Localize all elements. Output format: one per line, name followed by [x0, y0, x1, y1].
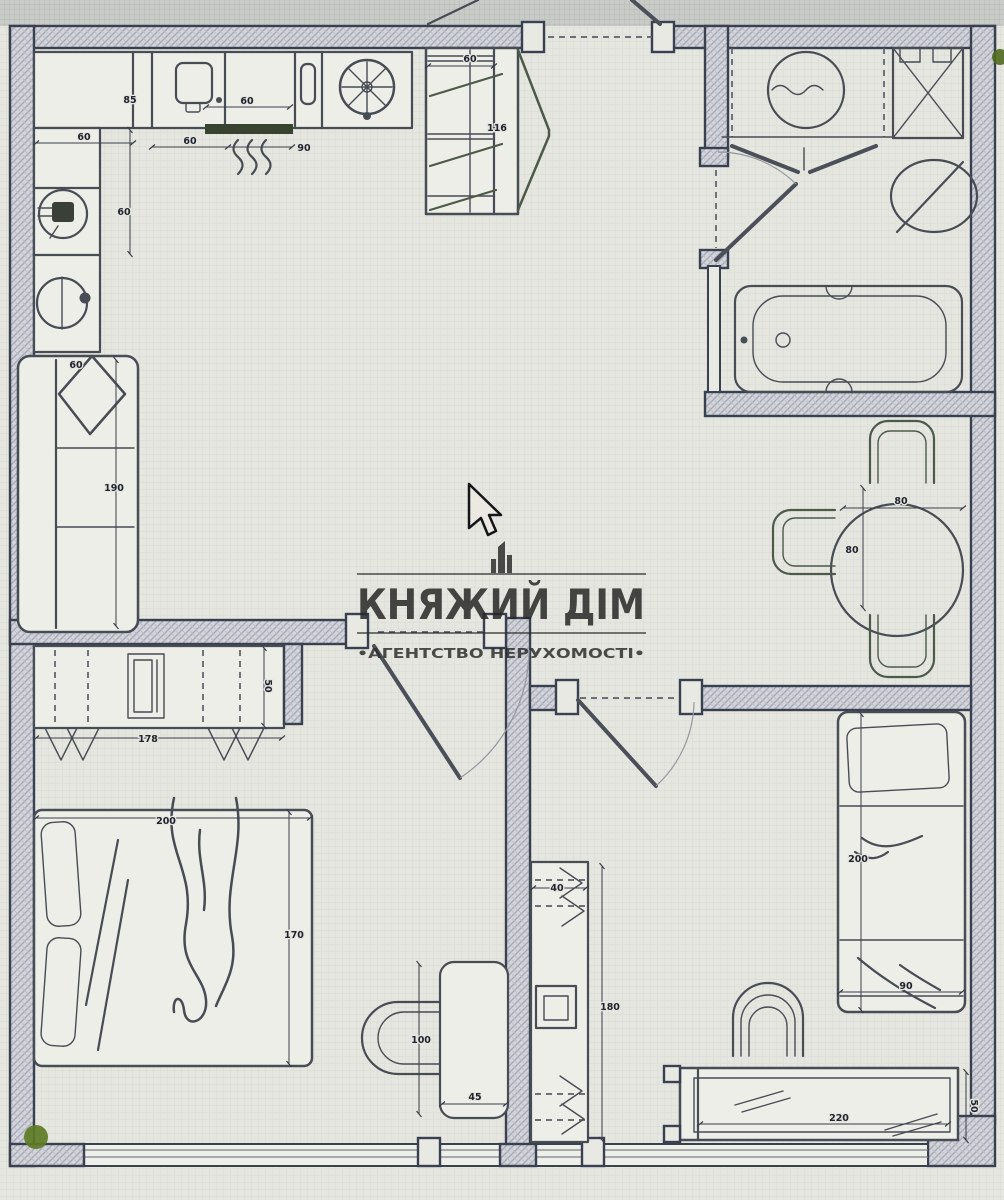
entry-jamb-left — [522, 22, 544, 52]
dim-label: 60 — [463, 54, 477, 65]
hob-front-bar — [205, 124, 293, 134]
kids-door-jamb — [680, 680, 702, 714]
dim-label: 100 — [411, 1035, 431, 1046]
dim-label: 60 — [77, 132, 91, 143]
dim-label: 220 — [829, 1113, 849, 1124]
wall-right — [971, 26, 995, 1124]
wall-bathroom-bottom — [705, 392, 995, 416]
dim-label: 40 — [550, 883, 564, 894]
dim-label: 178 — [138, 734, 158, 745]
outside-corridor-band — [0, 0, 1004, 26]
dim-label: 60 — [240, 96, 254, 107]
floor-plan-svg: 85 60 60 60 90 60 60 60 116 190 80 80 50… — [0, 0, 1004, 1200]
wall-bottom-center-block — [500, 1144, 536, 1166]
dim-label: 116 — [487, 123, 507, 134]
dim-label: 80 — [894, 496, 908, 507]
desk-icon — [664, 1066, 958, 1142]
wall-mid-vertical — [506, 618, 530, 1150]
dim-label: 60 — [183, 136, 197, 147]
dim-label: 90 — [297, 143, 311, 154]
kids-door-jamb — [556, 680, 578, 714]
bath-thin-wall — [708, 266, 720, 392]
dim-label: 85 — [123, 95, 136, 106]
plant-icon — [24, 1125, 48, 1149]
bath-partition-post — [700, 148, 728, 166]
dim-label: 200 — [156, 816, 176, 827]
dim-label: 50 — [262, 679, 273, 693]
floor-plan-photo: 85 60 60 60 90 60 60 60 116 190 80 80 50… — [0, 0, 1004, 1200]
kitchen-counter-left — [34, 128, 100, 352]
dim-label: 80 — [845, 545, 859, 556]
dim-label: 170 — [284, 930, 304, 941]
wall-bathroom-left — [705, 26, 728, 158]
wall-top-left — [10, 26, 542, 48]
wall-mid-right — [698, 686, 971, 710]
watermark-subtitle: •АГЕНТСТВО НЕРУХОМОСТІ• — [357, 646, 645, 662]
wall-stub — [284, 644, 302, 724]
window-post — [418, 1138, 440, 1166]
wall-bottom-left-block — [10, 1144, 84, 1166]
dim-label: 60 — [69, 360, 83, 371]
dim-label: 60 — [117, 207, 131, 218]
double-bed-icon — [34, 798, 312, 1066]
dim-label: 180 — [600, 1002, 620, 1013]
dim-label: 200 — [848, 854, 868, 865]
entry-jamb-right — [652, 22, 674, 52]
watermark-title: КНЯЖИЙ ДІМ — [357, 579, 645, 629]
wardrobe-icon — [531, 862, 588, 1142]
dim-label: 90 — [899, 981, 913, 992]
sofa-icon — [18, 356, 138, 632]
dim-label: 45 — [468, 1092, 481, 1103]
dim-label: 50 — [968, 1099, 979, 1113]
dim-label: 190 — [104, 483, 124, 494]
